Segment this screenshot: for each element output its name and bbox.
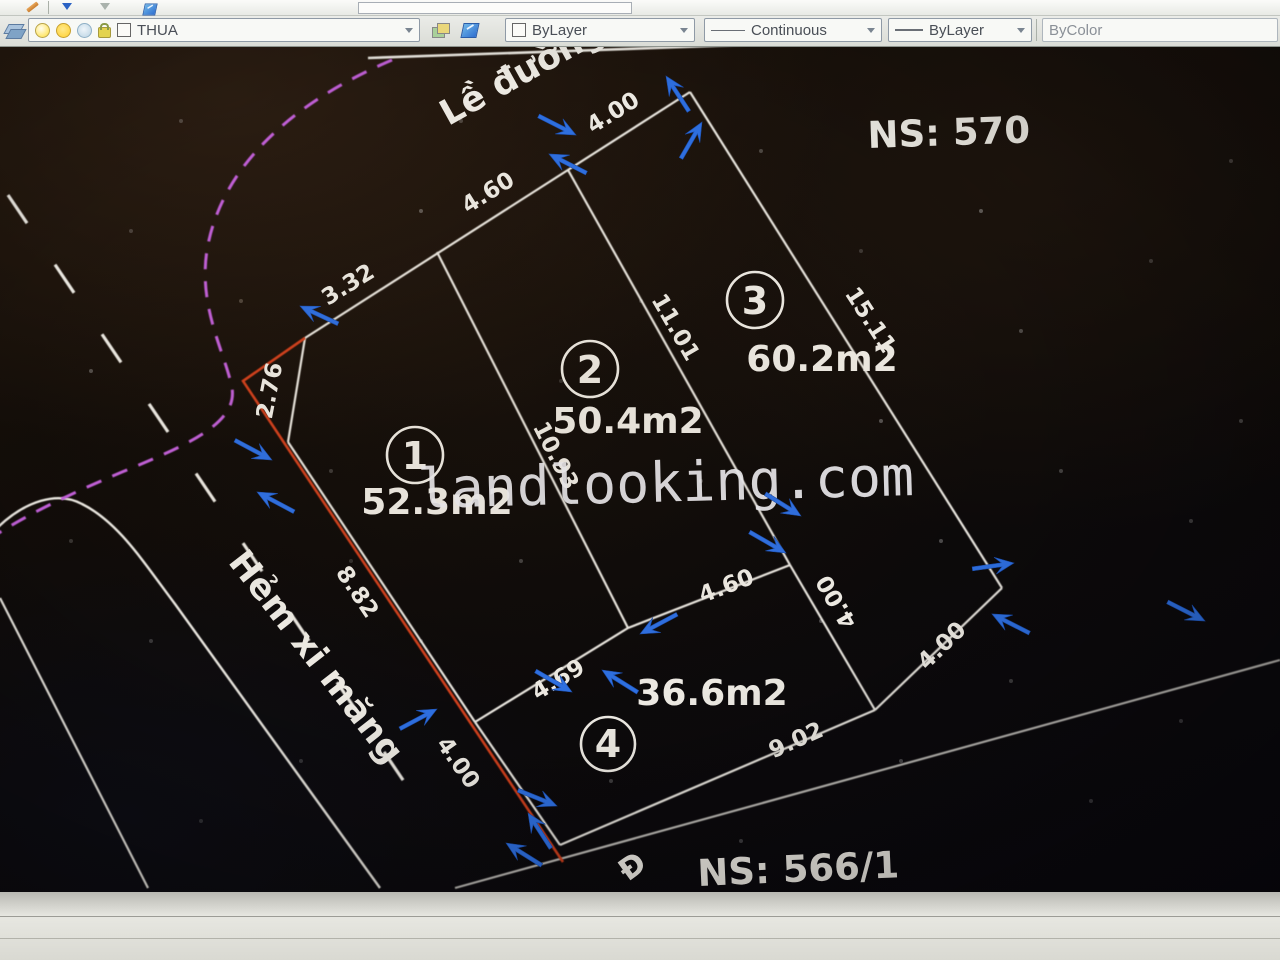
layers-icon[interactable] [6,24,23,38]
screen-bottom-bezel [0,892,1280,960]
linetype-value: Continuous [751,22,827,39]
selection-grip[interactable] [545,146,590,180]
make-layer-current-icon[interactable] [460,23,479,38]
dropdown-chevron-icon[interactable] [1017,28,1025,37]
dim-top-seg3: 4.00 [582,87,644,139]
dropdown-chevron-icon[interactable] [405,28,413,37]
bevel-edge [288,338,305,442]
dropdown-chevron-icon[interactable] [867,28,875,37]
plotstyle-dropdown[interactable]: ByColor [1042,18,1278,42]
linetype-dropdown[interactable]: Continuous [704,18,882,42]
parcel-2-area: 50.4m2 [552,401,703,442]
small-blue-icon[interactable] [142,4,157,16]
pencil-icon[interactable] [26,1,39,12]
dim-parcel4-south: 9.02 [765,717,827,764]
selection-grip[interactable] [988,606,1033,640]
lineweight-sample-icon [895,29,923,31]
layer-thaw-sun-icon[interactable] [56,23,71,38]
color-swatch [512,23,526,37]
ns-566-label: NS: 566/1 [697,843,900,895]
screen-photo: 3.32 4.60 4.00 2.76 8.82 10.93 11.01 15.… [0,0,1280,960]
color-value: ByLayer [532,22,587,39]
selection-grip[interactable] [535,108,580,142]
selection-grip[interactable] [231,433,276,468]
layer-name: THUA [137,22,178,39]
selection-grip[interactable] [253,484,298,519]
alley-left-label: Hẻm xi măng [220,543,411,771]
layer-lock-icon[interactable] [98,27,111,38]
cad-drawing: 3.32 4.60 4.00 2.76 8.82 10.93 11.01 15.… [0,0,1280,960]
selection-grip[interactable] [501,836,546,873]
lower-left-road-edge [0,598,148,888]
dim-parcel2-parcel3: 11.01 [646,289,705,365]
toolbar-row-layers: THUA ByLayer Continuous ByLayer [0,16,1280,46]
watermark-text: landlooking.com [417,444,915,521]
parcel-north-edge [305,92,690,338]
toolbar-row-top [0,0,1280,16]
parcel-3-number: 3 [742,279,768,323]
dim-west: 8.82 [330,561,383,623]
lineweight-value: ByLayer [929,22,984,39]
lineweight-dropdown[interactable]: ByLayer [888,18,1032,42]
plotstyle-value: ByColor [1049,22,1102,39]
parcel4-west-edge [475,722,560,845]
bezel-line [0,916,1280,917]
linetype-sample-icon [711,30,745,31]
parcel-4-area: 36.6m2 [636,673,787,714]
ns-570-label: NS: 570 [867,108,1031,157]
toolbar-text-field[interactable] [358,2,632,14]
layer-freeze-icon[interactable] [77,23,92,38]
dim-parcel4-west: 4.00 [431,732,485,793]
parcel-4-number: 4 [595,722,621,766]
street-partial-letter: Đ [612,845,653,888]
down-arrow-icon[interactable] [62,3,72,15]
dim-top-seg2: 4.60 [457,167,519,219]
layer-color-swatch[interactable] [117,23,131,37]
color-dropdown[interactable]: ByLayer [505,18,695,42]
dim-top-seg1: 3.32 [317,259,379,311]
gray-arrow-icon [100,3,110,15]
bezel-line [0,938,1280,939]
parcel-4-label: 4 36.6m2 [581,673,788,771]
selection-grip[interactable] [396,701,441,736]
dim-parcel4-top2: 4.60 [695,564,757,609]
selection-grip[interactable] [636,607,681,642]
layer-dropdown[interactable]: THUA [28,18,420,42]
dim-parcel4-top1: 4.69 [527,654,589,706]
selection-grip[interactable] [1164,594,1209,628]
selection-grip[interactable] [674,118,710,163]
dropdown-chevron-icon[interactable] [680,28,688,37]
layer-states-icon[interactable] [432,23,449,37]
toolbar-separator [48,1,49,14]
dim-parcel3-parcel4: 4.00 [811,570,862,632]
parcel-labels: 1 52.3m2 2 50.4m2 3 60.2m2 4 36.6m2 [361,272,897,771]
toolbar-separator [1036,19,1037,41]
parcel-2-number: 2 [577,348,603,392]
layer-on-bulb-icon[interactable] [35,23,50,38]
cad-toolbar: THUA ByLayer Continuous ByLayer [0,0,1280,47]
parcel-3-area: 60.2m2 [746,339,897,380]
